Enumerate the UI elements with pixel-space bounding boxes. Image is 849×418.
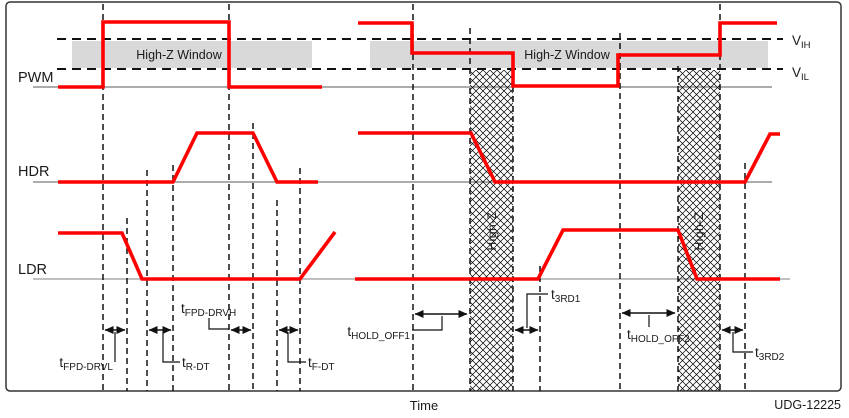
tfpd-drvh-label: tFPD-DRVH <box>181 301 236 319</box>
thold-off1-label: tHOLD_OFF1 <box>347 324 410 342</box>
tf-dt-label: tF-DT <box>308 355 335 373</box>
vil-label: VIL <box>792 65 809 83</box>
highz-window-label-left: High-Z Window <box>136 48 222 62</box>
t3rd1-label: t3RD1 <box>551 287 581 305</box>
highz-bar-label-1: High-Z <box>485 211 499 250</box>
vih-label: VIH <box>792 33 811 51</box>
t3rd2-label: t3RD2 <box>755 345 785 363</box>
ldr-signal-label: LDR <box>18 262 47 278</box>
time-axis-label: Time <box>410 398 438 413</box>
tr-dt-label: tR-DT <box>182 355 210 373</box>
ldr-trace-left <box>58 232 335 279</box>
highz-bar-label-2: High-Z <box>692 211 706 250</box>
hdr-signal-label: HDR <box>18 164 49 180</box>
timing-diagram: PWM HDR LDR VIH VIL High-Z Window High-Z… <box>0 0 849 418</box>
hdr-trace-left <box>58 133 318 182</box>
highz-window-label-right: High-Z Window <box>524 48 610 62</box>
leader-lines <box>115 294 753 362</box>
doc-id-label: UDG-12225 <box>774 398 841 412</box>
tfpd-drvl-label: tFPD-DRVL <box>59 355 113 373</box>
pwm-signal-label: PWM <box>18 70 53 86</box>
